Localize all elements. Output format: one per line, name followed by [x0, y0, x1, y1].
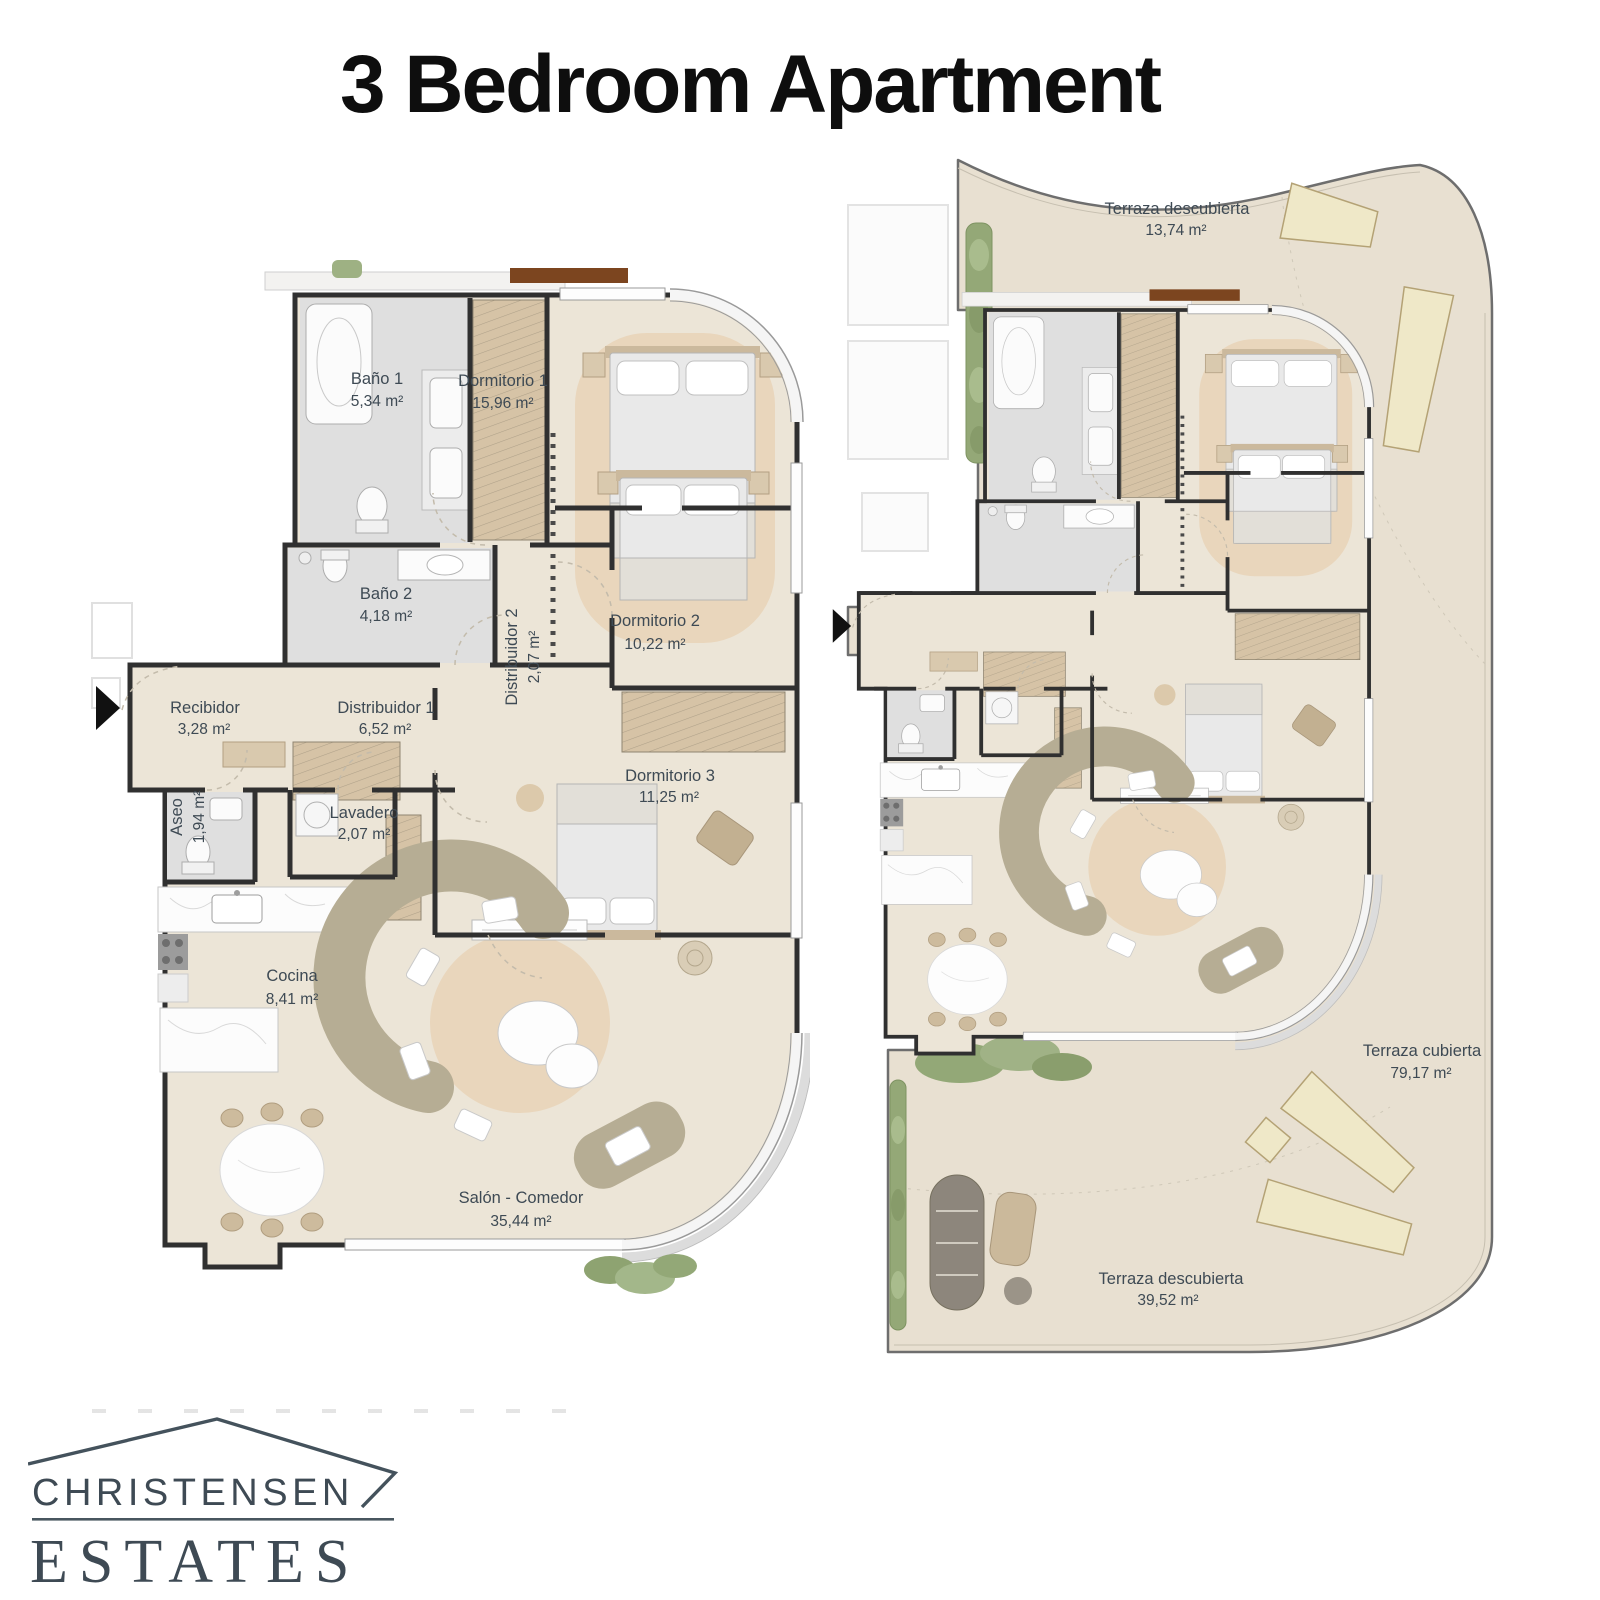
room-label: Distribuidor 2 — [503, 608, 521, 705]
pouf — [516, 784, 544, 812]
room-area: 6,52 m² — [359, 721, 412, 738]
room-label: Terraza descubierta — [1105, 200, 1251, 218]
hall-shelf — [223, 742, 285, 767]
bed-dormitorio3 — [553, 784, 661, 940]
double-sink — [422, 370, 468, 510]
room-area: 4,18 m² — [360, 608, 413, 625]
wardrobe-closet1 — [473, 300, 545, 540]
room-label: Dormitorio 1 — [458, 372, 548, 390]
side-table — [678, 941, 712, 975]
planter-strip-left — [890, 1080, 906, 1330]
room-area: 15,96 m² — [472, 395, 533, 412]
room-area: 3,28 m² — [178, 721, 231, 738]
planter-top — [332, 260, 362, 278]
room-label: Baño 2 — [360, 585, 412, 603]
room-label: Distribuidor 1 — [337, 699, 434, 717]
room-label: Dormitorio 2 — [610, 612, 700, 630]
kitchen-counter — [158, 887, 350, 932]
room-label: Baño 1 — [351, 370, 403, 388]
room-area: 39,52 m² — [1137, 1292, 1198, 1309]
logo-name: CHRISTENSEN — [32, 1472, 354, 1514]
room-area: 2,07 m² — [338, 826, 391, 843]
logo-subname: ESTATES — [30, 1528, 360, 1596]
toilet — [356, 487, 388, 533]
coffee-table-small — [546, 1044, 598, 1088]
room-area: 13,74 m² — [1145, 222, 1206, 239]
room-area: 1,94 m² — [191, 791, 208, 844]
room-area: 8,41 m² — [266, 991, 319, 1008]
room-area: 10,22 m² — [624, 636, 685, 653]
room-area: 2,07 m² — [526, 631, 543, 684]
room-area: 79,17 m² — [1390, 1065, 1451, 1082]
adjacent-unit-ghost — [848, 205, 948, 551]
room-label: Dormitorio 3 — [625, 767, 715, 785]
logo-divider — [32, 1518, 394, 1521]
floorplan-terraces: Terraza descubierta 13,74 m² Terraza cub… — [830, 145, 1520, 1370]
door-lintel — [510, 268, 628, 283]
room-label: Lavadero — [330, 804, 399, 822]
room-area: 35,44 m² — [490, 1213, 551, 1230]
stove — [158, 934, 188, 970]
entry-arrow-icon — [96, 686, 120, 730]
page-title: 3 Bedroom Apartment — [0, 38, 1500, 132]
room-label: Cocina — [266, 967, 318, 985]
wardrobe-dormitorio3 — [622, 692, 785, 752]
company-logo: CHRISTENSEN ESTATES — [28, 1408, 418, 1600]
kitchen-island — [160, 1008, 278, 1072]
room-label: Terraza descubierta — [1099, 1270, 1245, 1288]
room-label: Salón - Comedor — [459, 1189, 584, 1207]
fridge — [158, 974, 188, 1002]
room-label: Recibidor — [170, 699, 240, 717]
floorplan-interior: Baño 1 5,34 m² Dormitorio 1 15,96 m² Bañ… — [85, 258, 810, 1313]
room-label: Aseo — [168, 798, 186, 836]
floorplan-page: 3 Bedroom Apartment — [0, 0, 1600, 1600]
room-area: 5,34 m² — [351, 393, 404, 410]
room-label: Terraza cubierta — [1363, 1042, 1482, 1060]
bed-dormitorio2 — [598, 470, 769, 600]
room-area: 11,25 m² — [639, 789, 699, 806]
